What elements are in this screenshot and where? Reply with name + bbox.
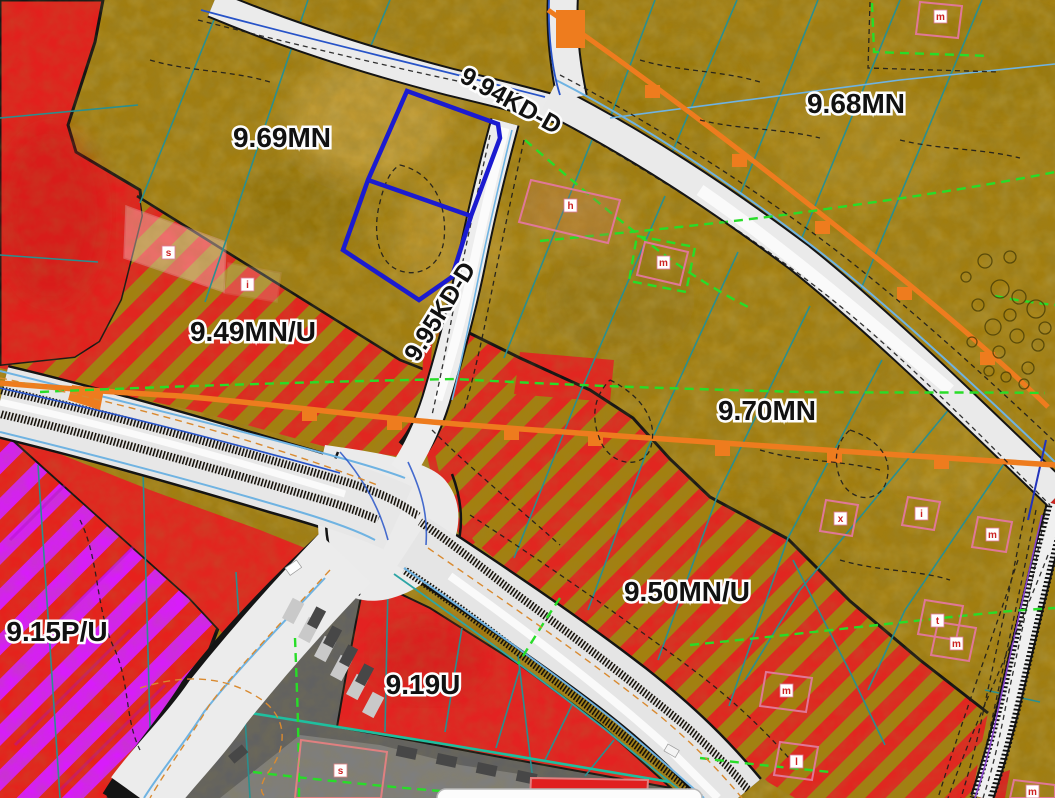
svg-text:9.50MN/U: 9.50MN/U <box>624 576 750 607</box>
svg-text:s: s <box>166 248 172 259</box>
svg-text:x: x <box>838 514 844 525</box>
svg-text:m: m <box>1028 787 1037 798</box>
svg-text:m: m <box>659 258 668 269</box>
svg-text:9.15P/U: 9.15P/U <box>6 616 107 647</box>
svg-text:h: h <box>567 201 573 212</box>
svg-text:m: m <box>782 686 791 697</box>
svg-text:9.69MN: 9.69MN <box>233 122 331 153</box>
svg-text:m: m <box>988 530 997 541</box>
svg-text:9.19U: 9.19U <box>386 669 461 700</box>
svg-text:9.49MN/U: 9.49MN/U <box>190 316 316 347</box>
svg-text:i: i <box>246 280 249 291</box>
svg-text:9.68MN: 9.68MN <box>807 88 905 119</box>
svg-text:i: i <box>920 509 923 520</box>
svg-text:m: m <box>952 639 961 650</box>
svg-text:m: m <box>936 12 945 23</box>
svg-text:9.70MN: 9.70MN <box>718 395 816 426</box>
svg-text:s: s <box>338 766 344 777</box>
svg-text:l: l <box>795 757 798 768</box>
